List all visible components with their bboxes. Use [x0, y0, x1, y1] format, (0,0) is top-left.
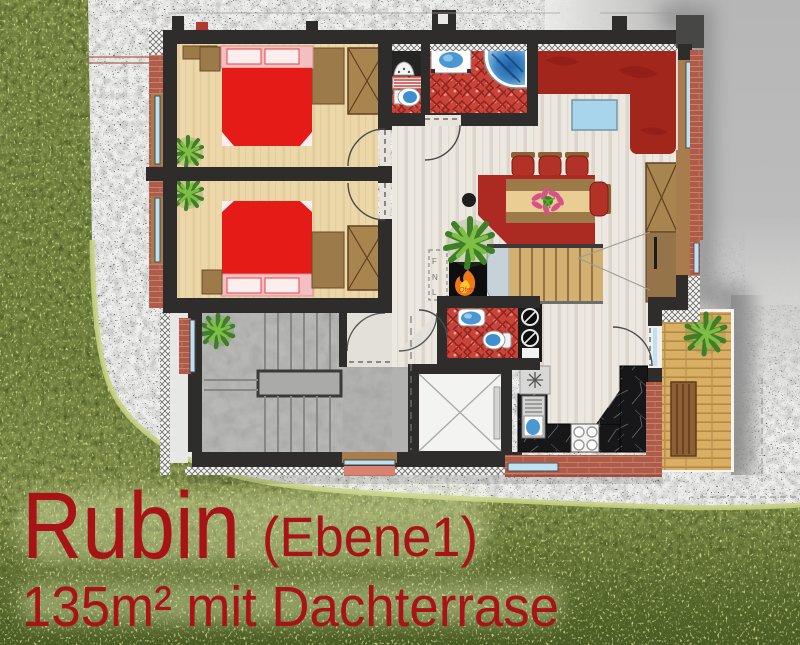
svg-text:Ofen: Ofen: [459, 287, 474, 294]
svg-text:N: N: [432, 273, 438, 282]
svg-text:F: F: [432, 257, 437, 266]
svg-text:135m² mit Dachterrase: 135m² mit Dachterrase: [22, 575, 559, 639]
svg-text:L: L: [432, 288, 437, 297]
svg-text:Rubin: Rubin: [22, 473, 240, 579]
svg-text:(Ebene1): (Ebene1): [262, 505, 478, 568]
